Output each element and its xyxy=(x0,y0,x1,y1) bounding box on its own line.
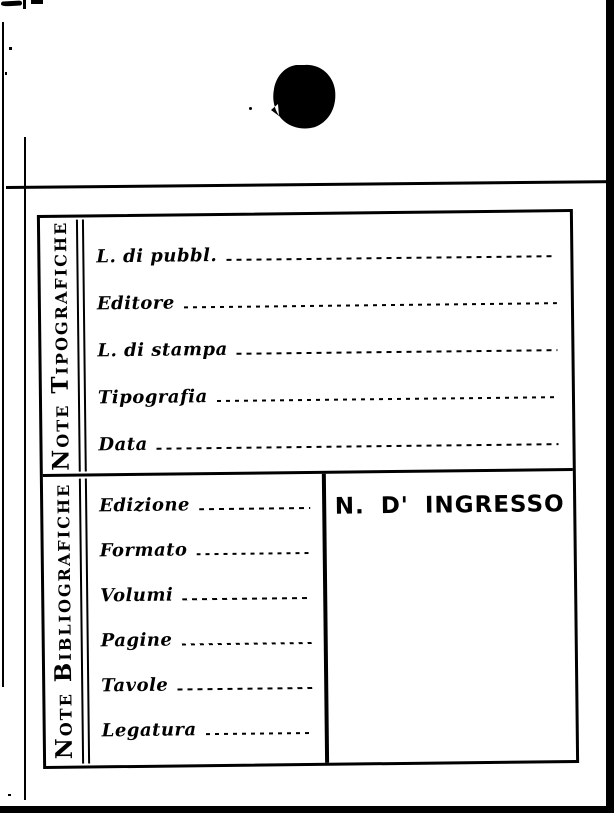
tipografiche-fields: L. di pubbl. Editore L. di stampa Tipogr… xyxy=(84,212,573,473)
blank-fill-line xyxy=(226,255,556,261)
side-label-column: Note Bibliografiche xyxy=(43,477,82,766)
field-label: Data xyxy=(98,436,147,456)
card-guide-vertical-line xyxy=(24,137,26,800)
field-label: L. di pubbl. xyxy=(96,247,217,267)
blank-fill-line xyxy=(197,552,311,555)
blank-fill-line xyxy=(206,732,313,735)
field-label: Edizione xyxy=(99,496,190,516)
section-note-tipografiche: Note Tipografiche L. di pubbl. Editore L… xyxy=(40,212,573,477)
section-title-note-bibliografiche: Note Bibliografiche xyxy=(49,483,75,760)
field-label: L. di stampa xyxy=(97,341,228,361)
field-row-edizione: Edizione xyxy=(99,474,322,517)
blank-fill-line xyxy=(184,302,557,308)
scan-speck xyxy=(5,72,7,75)
card-guide-horizontal-line xyxy=(6,180,614,189)
field-row-data: Data xyxy=(98,403,573,455)
field-row-tavole: Tavole xyxy=(101,649,324,697)
field-row-pagine: Pagine xyxy=(100,604,323,652)
field-row-luogo-pubblicazione: L. di pubbl. xyxy=(96,212,571,267)
scan-mark-top-left xyxy=(1,0,22,6)
blank-fill-line xyxy=(181,642,311,645)
ink-blob-hole-mark xyxy=(269,62,339,138)
scan-edge-strip-right xyxy=(606,0,614,813)
field-label: Formato xyxy=(100,541,188,561)
catalog-card: Note Tipografiche L. di pubbl. Editore L… xyxy=(37,209,579,769)
scan-speck xyxy=(8,794,11,796)
field-label: Tavole xyxy=(101,677,168,697)
blank-fill-line xyxy=(217,396,558,402)
scan-speck xyxy=(249,107,252,110)
field-label: Tipografia xyxy=(98,388,208,408)
field-row-legatura: Legatura xyxy=(101,694,324,742)
scan-speck xyxy=(9,47,12,50)
blank-fill-line xyxy=(177,687,312,691)
field-row-tipografia: Tipografia xyxy=(98,356,573,408)
field-label: Editore xyxy=(97,294,175,314)
field-row-formato: Formato xyxy=(99,514,322,562)
side-label-column: Note Tipografiche xyxy=(40,218,79,474)
field-row-luogo-stampa: L. di stampa xyxy=(97,309,572,361)
field-label: Legatura xyxy=(102,721,197,741)
scan-mark-top-dash xyxy=(31,0,43,4)
field-row-editore: Editore xyxy=(96,262,571,314)
field-label: Pagine xyxy=(101,632,173,652)
blank-fill-line xyxy=(237,349,558,355)
blank-fill-line xyxy=(199,507,310,510)
ingresso-box: N. D' INGRESSO xyxy=(322,471,576,763)
section-note-bibliografiche: Note Bibliografiche Edizione Formato Vol… xyxy=(43,471,576,766)
bibliografiche-fields: Edizione Formato Volumi Pagine Tavole xyxy=(87,474,325,766)
scanned-catalog-card-page: Note Tipografiche L. di pubbl. Editore L… xyxy=(0,0,614,813)
field-label: Volumi xyxy=(100,587,173,607)
blank-fill-line xyxy=(157,443,559,450)
scan-edge-strip-bottom xyxy=(0,806,614,813)
scan-left-edge-line xyxy=(2,22,4,687)
scan-mark-top-tick xyxy=(23,0,26,9)
section-title-note-tipografiche: Note Tipografiche xyxy=(46,221,72,471)
field-row-volumi: Volumi xyxy=(100,559,323,607)
ingresso-title: N. D' INGRESSO xyxy=(326,491,573,520)
blank-fill-line xyxy=(182,597,311,600)
